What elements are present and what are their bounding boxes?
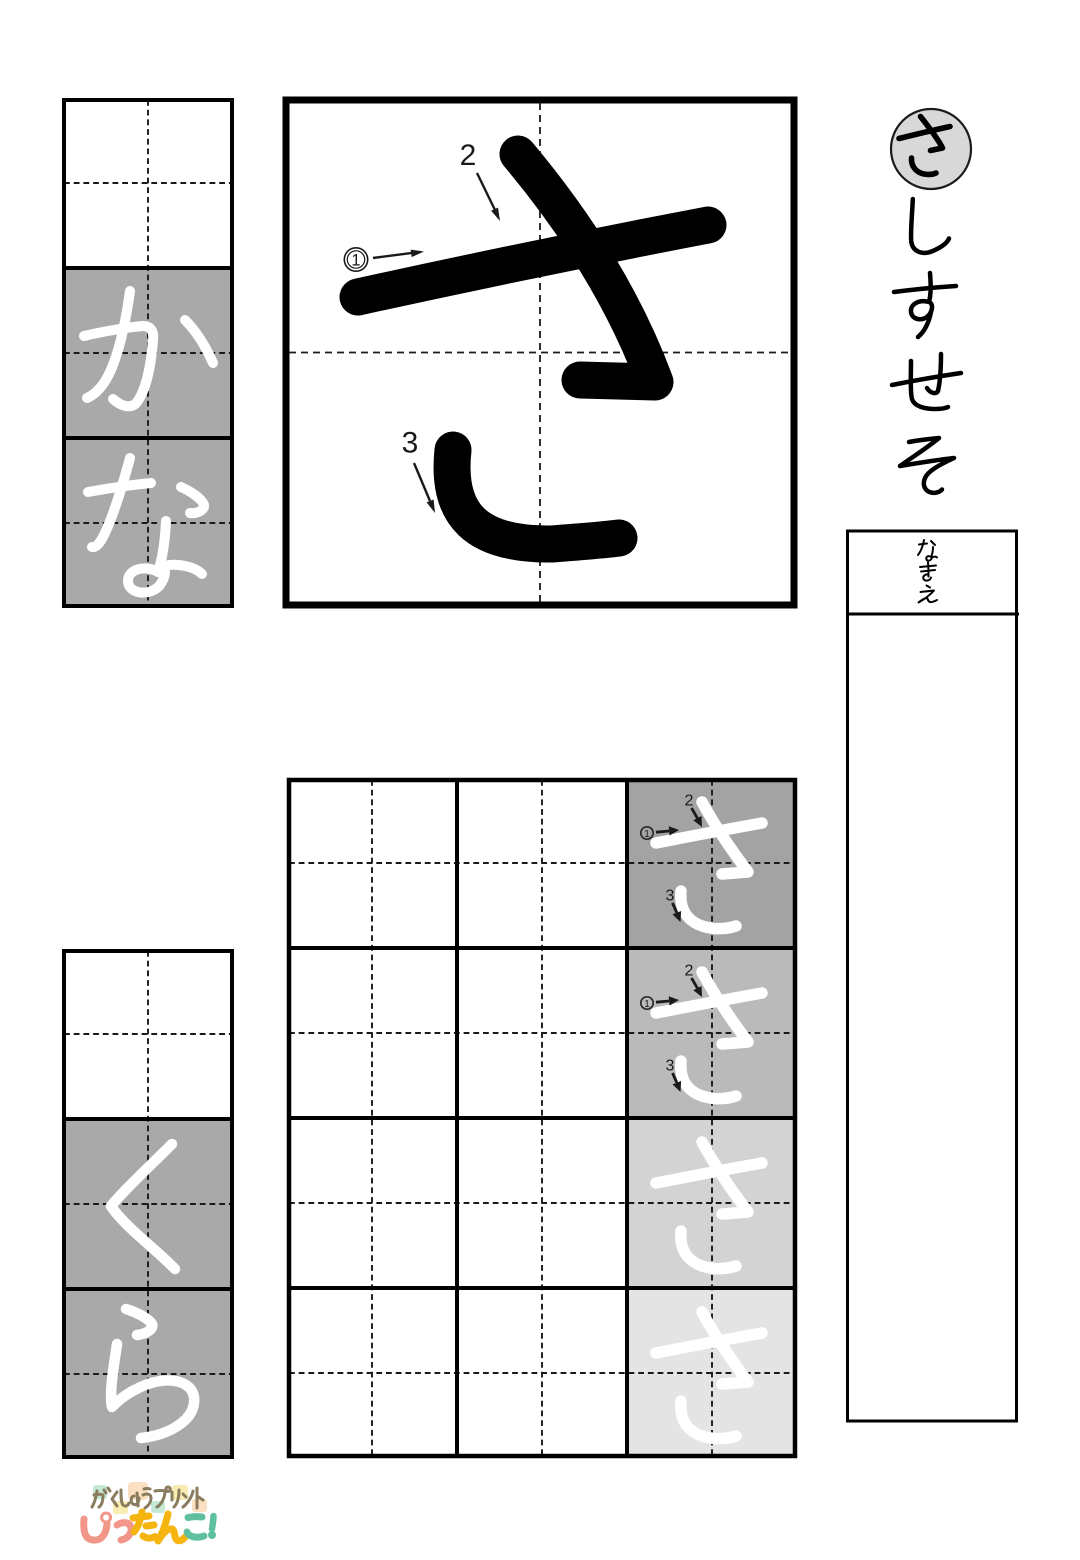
svg-text:1: 1 (351, 252, 360, 270)
svg-text:3: 3 (402, 427, 419, 460)
svg-text:2: 2 (460, 139, 477, 172)
